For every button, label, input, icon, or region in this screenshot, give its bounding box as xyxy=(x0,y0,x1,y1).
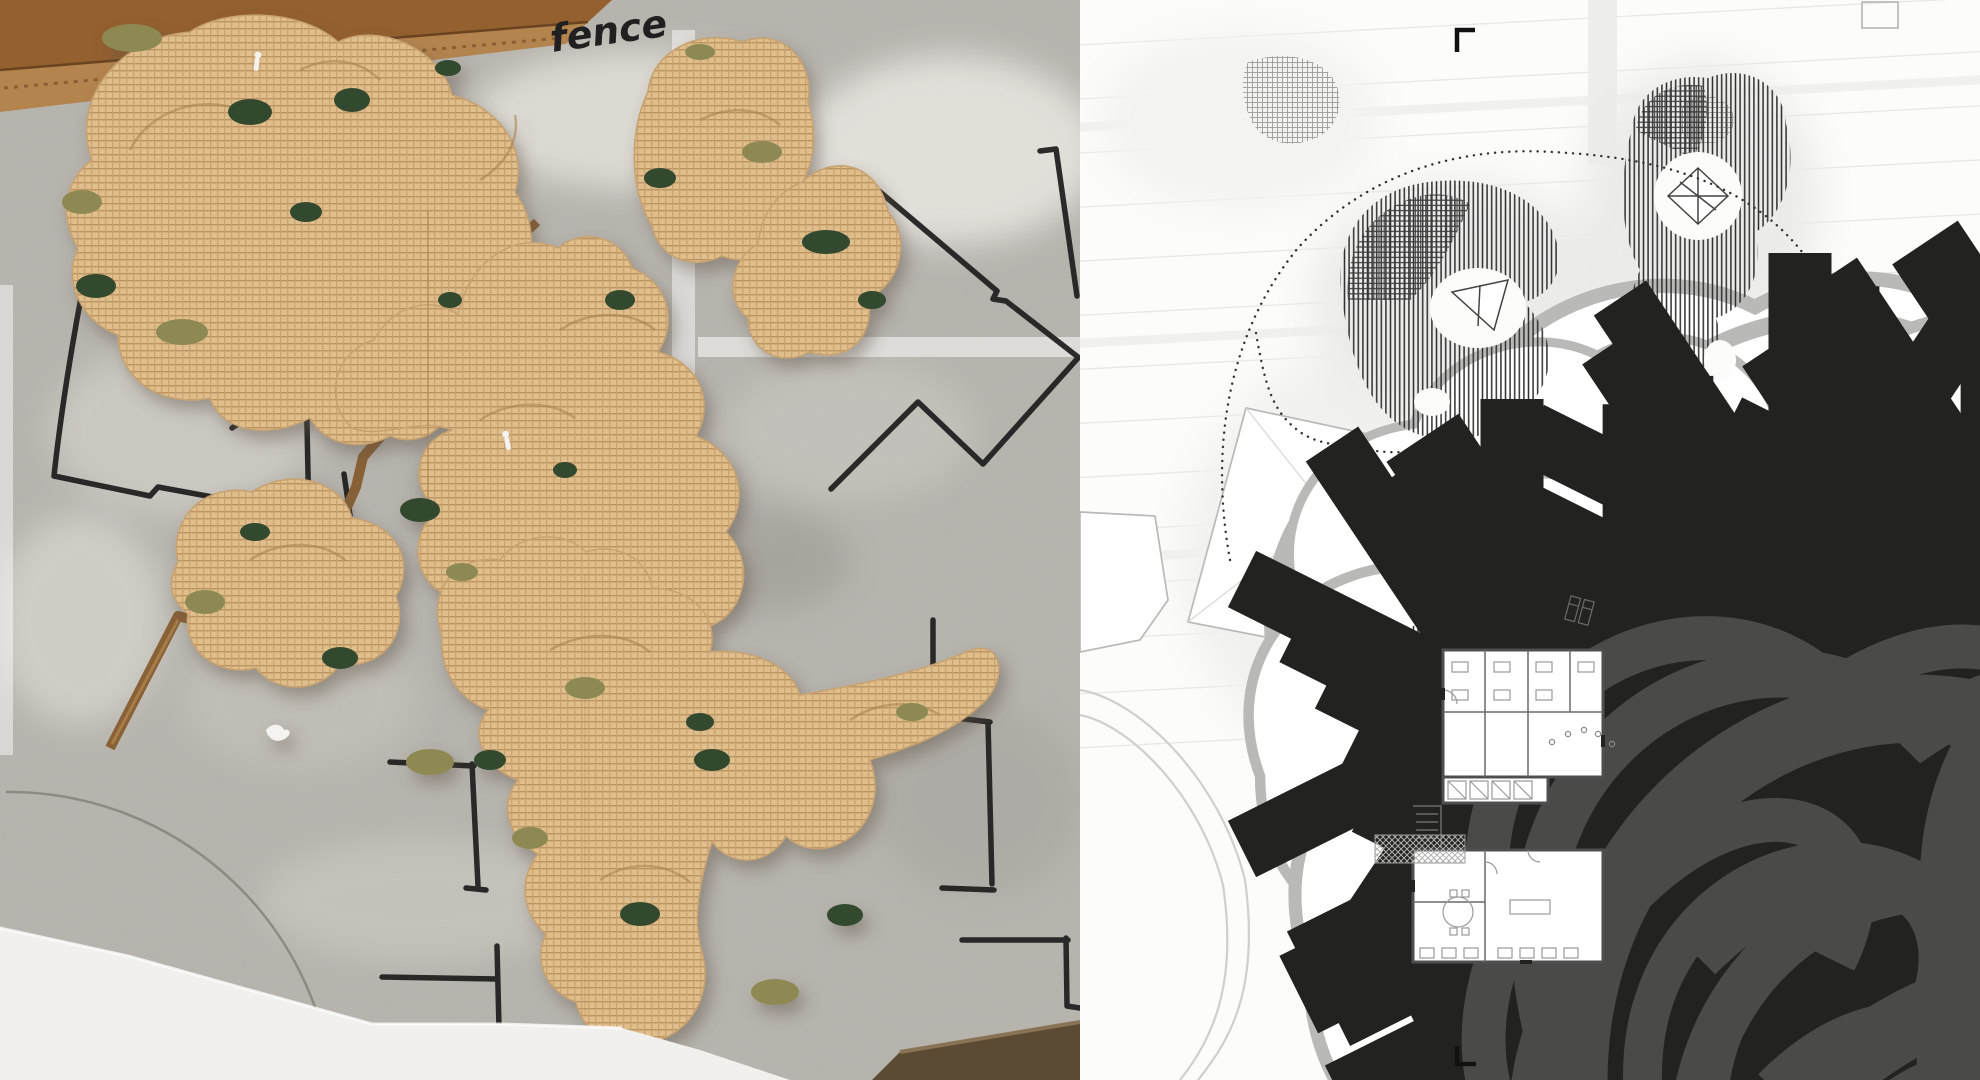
building-upper-block xyxy=(1443,650,1603,777)
site-plan xyxy=(1080,0,1980,1080)
photo-grain xyxy=(0,0,1080,1080)
pergola-trellis xyxy=(1375,835,1465,863)
model-photo: fence xyxy=(0,0,1080,1080)
model-photo-panel: fence xyxy=(0,0,1080,1080)
site-plan-panel xyxy=(1080,0,1980,1080)
split-view: fence xyxy=(0,0,1980,1080)
building-lower-wing xyxy=(1413,850,1603,962)
